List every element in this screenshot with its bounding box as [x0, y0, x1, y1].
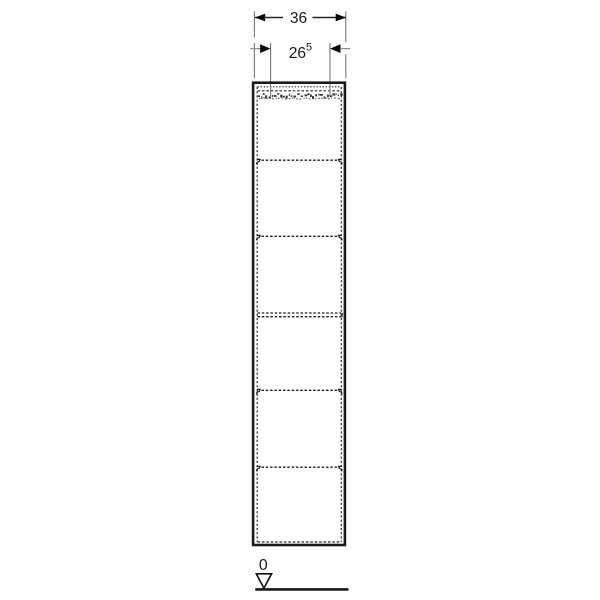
svg-text:36: 36	[290, 10, 307, 27]
svg-text:0: 0	[259, 557, 268, 574]
svg-text:26: 26	[289, 45, 306, 62]
svg-text:5: 5	[306, 42, 312, 54]
